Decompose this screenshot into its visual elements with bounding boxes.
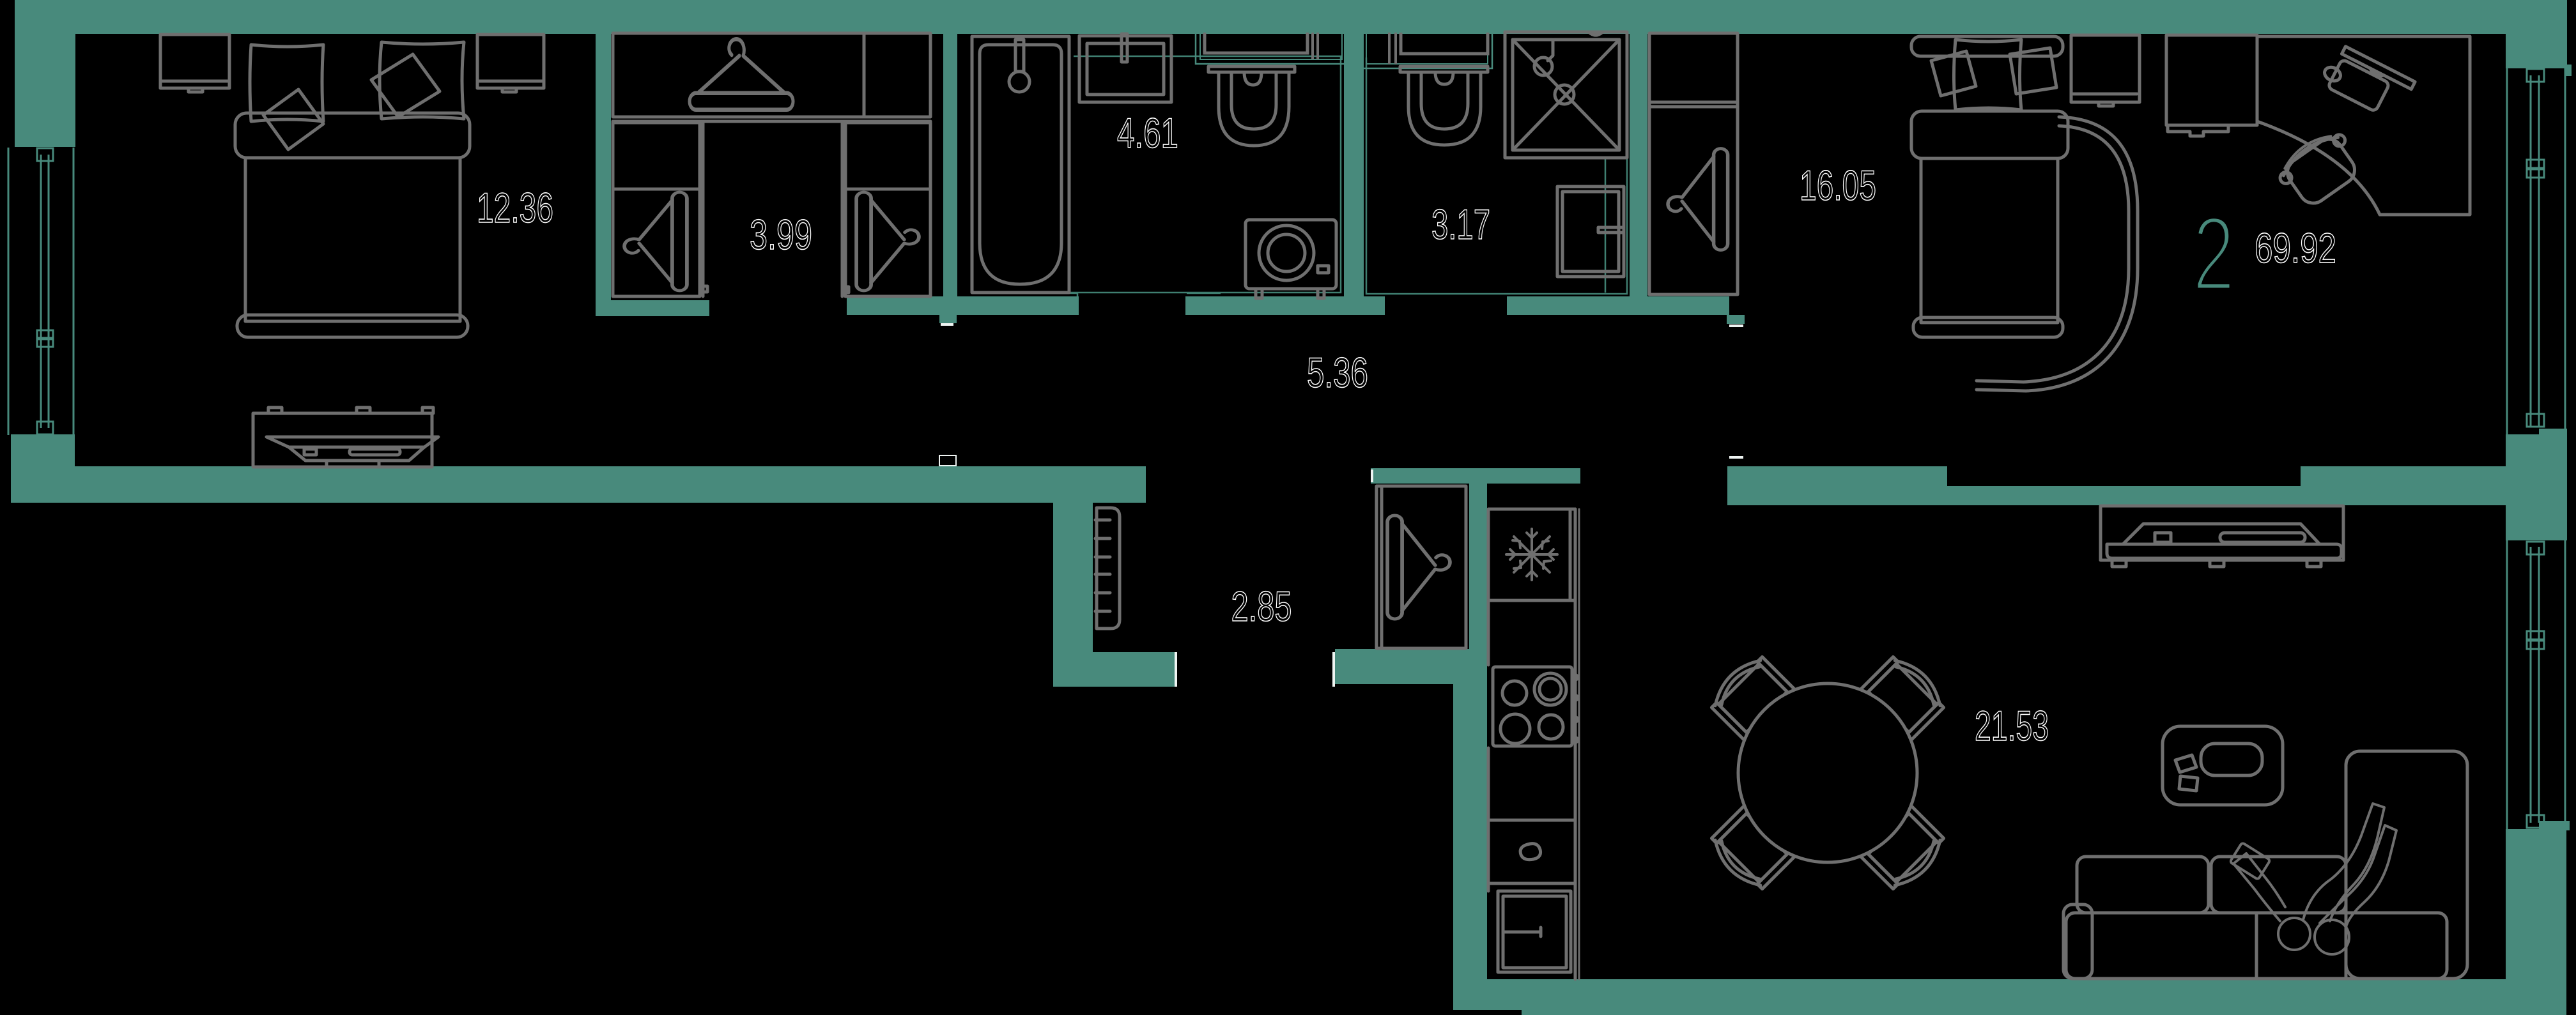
svg-text:69.92: 69.92: [2255, 224, 2336, 271]
svg-text:21.53: 21.53: [1975, 702, 2049, 749]
svg-text:2: 2: [2193, 195, 2235, 312]
svg-text:12.36: 12.36: [477, 184, 553, 231]
svg-text:3.99: 3.99: [750, 211, 812, 258]
svg-text:3.17: 3.17: [1431, 201, 1490, 248]
svg-text:5.36: 5.36: [1307, 349, 1368, 396]
svg-text:2.85: 2.85: [1231, 583, 1292, 630]
svg-text:16.05: 16.05: [1800, 162, 1876, 209]
svg-text:4.61: 4.61: [1117, 109, 1178, 156]
